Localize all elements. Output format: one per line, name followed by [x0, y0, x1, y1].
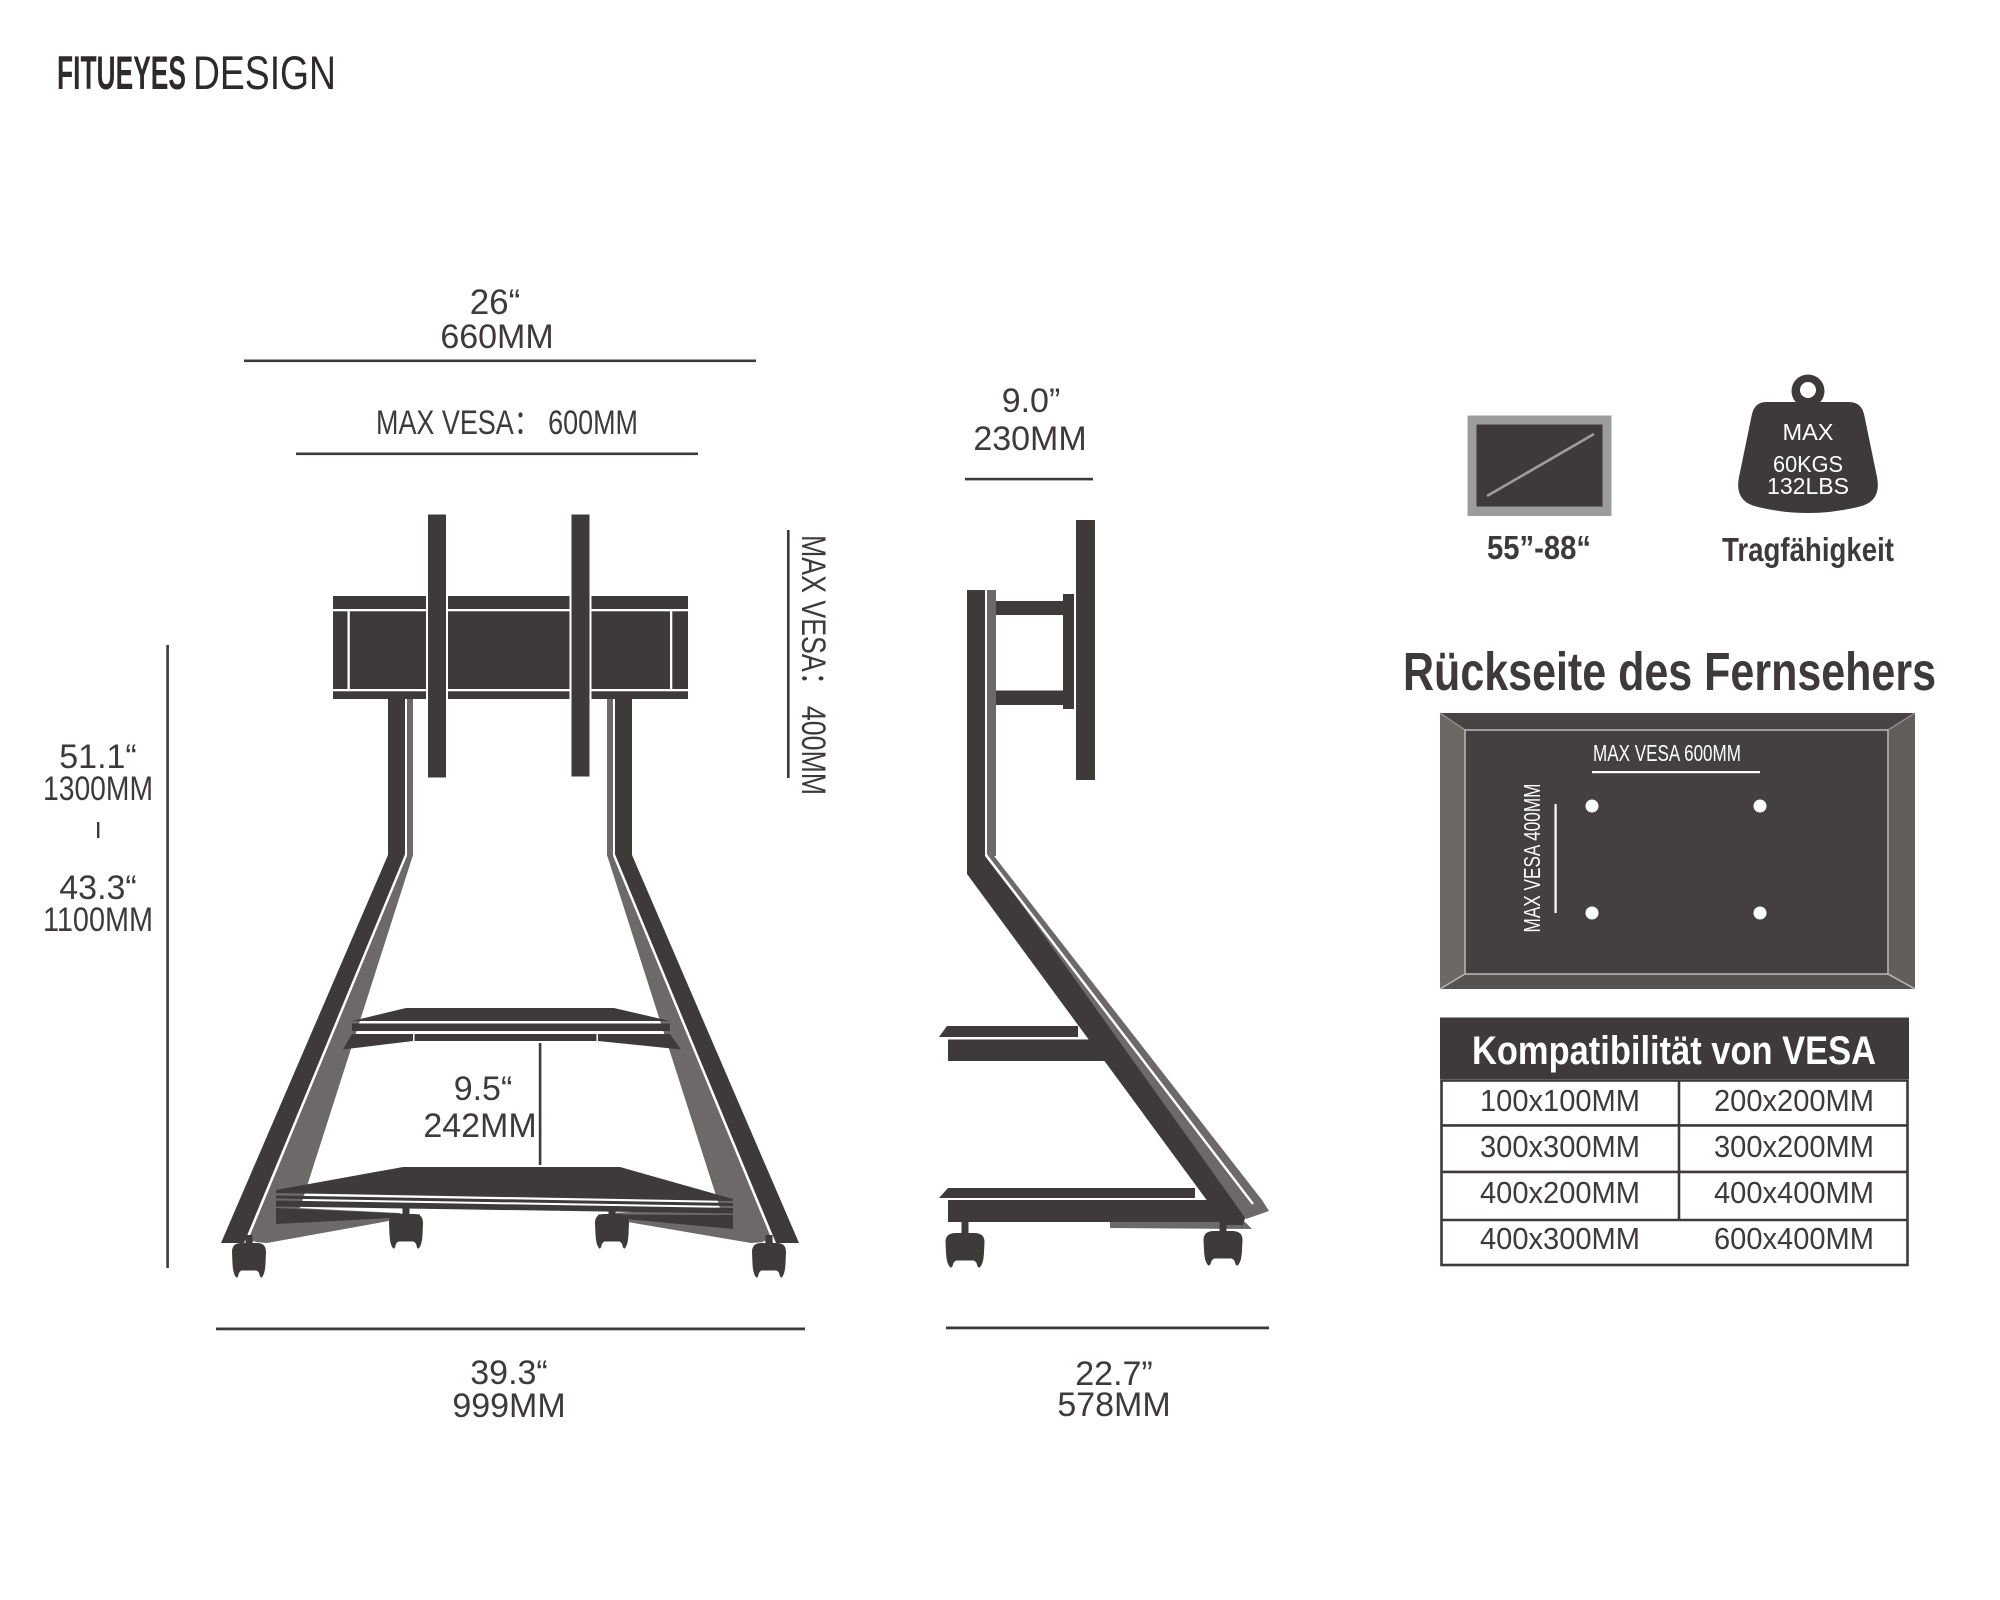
svg-text:Tragfähigkeit: Tragfähigkeit: [1722, 531, 1894, 568]
svg-text:MAX VESA： 600MM: MAX VESA： 600MM: [376, 404, 638, 442]
svg-text:300x300MM: 300x300MM: [1480, 1129, 1640, 1164]
svg-text:400x200MM: 400x200MM: [1480, 1175, 1640, 1210]
svg-text:DESIGN: DESIGN: [193, 46, 336, 99]
svg-text:200x200MM: 200x200MM: [1714, 1083, 1874, 1118]
svg-text:600x400MM: 600x400MM: [1714, 1221, 1874, 1256]
svg-text:MAX VESA： 400MM: MAX VESA： 400MM: [794, 535, 832, 795]
svg-text:230MM: 230MM: [973, 420, 1086, 458]
svg-text:400x300MM: 400x300MM: [1480, 1221, 1640, 1256]
svg-text:FITUEYES: FITUEYES: [57, 46, 186, 99]
svg-text:9.0”: 9.0”: [1002, 382, 1061, 420]
svg-text:9.5“: 9.5“: [454, 1070, 513, 1108]
svg-text:55”-88“: 55”-88“: [1487, 529, 1591, 566]
svg-text:660MM: 660MM: [440, 318, 553, 356]
svg-text:242MM: 242MM: [423, 1107, 536, 1145]
svg-text:1300MM: 1300MM: [43, 770, 153, 808]
svg-text:999MM: 999MM: [452, 1387, 565, 1425]
svg-text:578MM: 578MM: [1057, 1386, 1170, 1424]
svg-text:MAX VESA 600MM: MAX VESA 600MM: [1593, 740, 1741, 766]
svg-text:Kompatibilität von VESA: Kompatibilität von VESA: [1472, 1029, 1876, 1073]
svg-text:MAX: MAX: [1783, 419, 1834, 445]
svg-text:132LBS: 132LBS: [1767, 473, 1849, 499]
svg-text:300x200MM: 300x200MM: [1714, 1129, 1874, 1164]
svg-text:400x400MM: 400x400MM: [1714, 1175, 1874, 1210]
svg-text:100x100MM: 100x100MM: [1480, 1083, 1640, 1118]
svg-text:Rückseite des Fernsehers: Rückseite des Fernsehers: [1403, 642, 1936, 702]
svg-text:26“: 26“: [470, 283, 521, 322]
svg-text:MAX VESA 400MM: MAX VESA 400MM: [1519, 784, 1545, 933]
svg-text:1100MM: 1100MM: [43, 901, 153, 939]
